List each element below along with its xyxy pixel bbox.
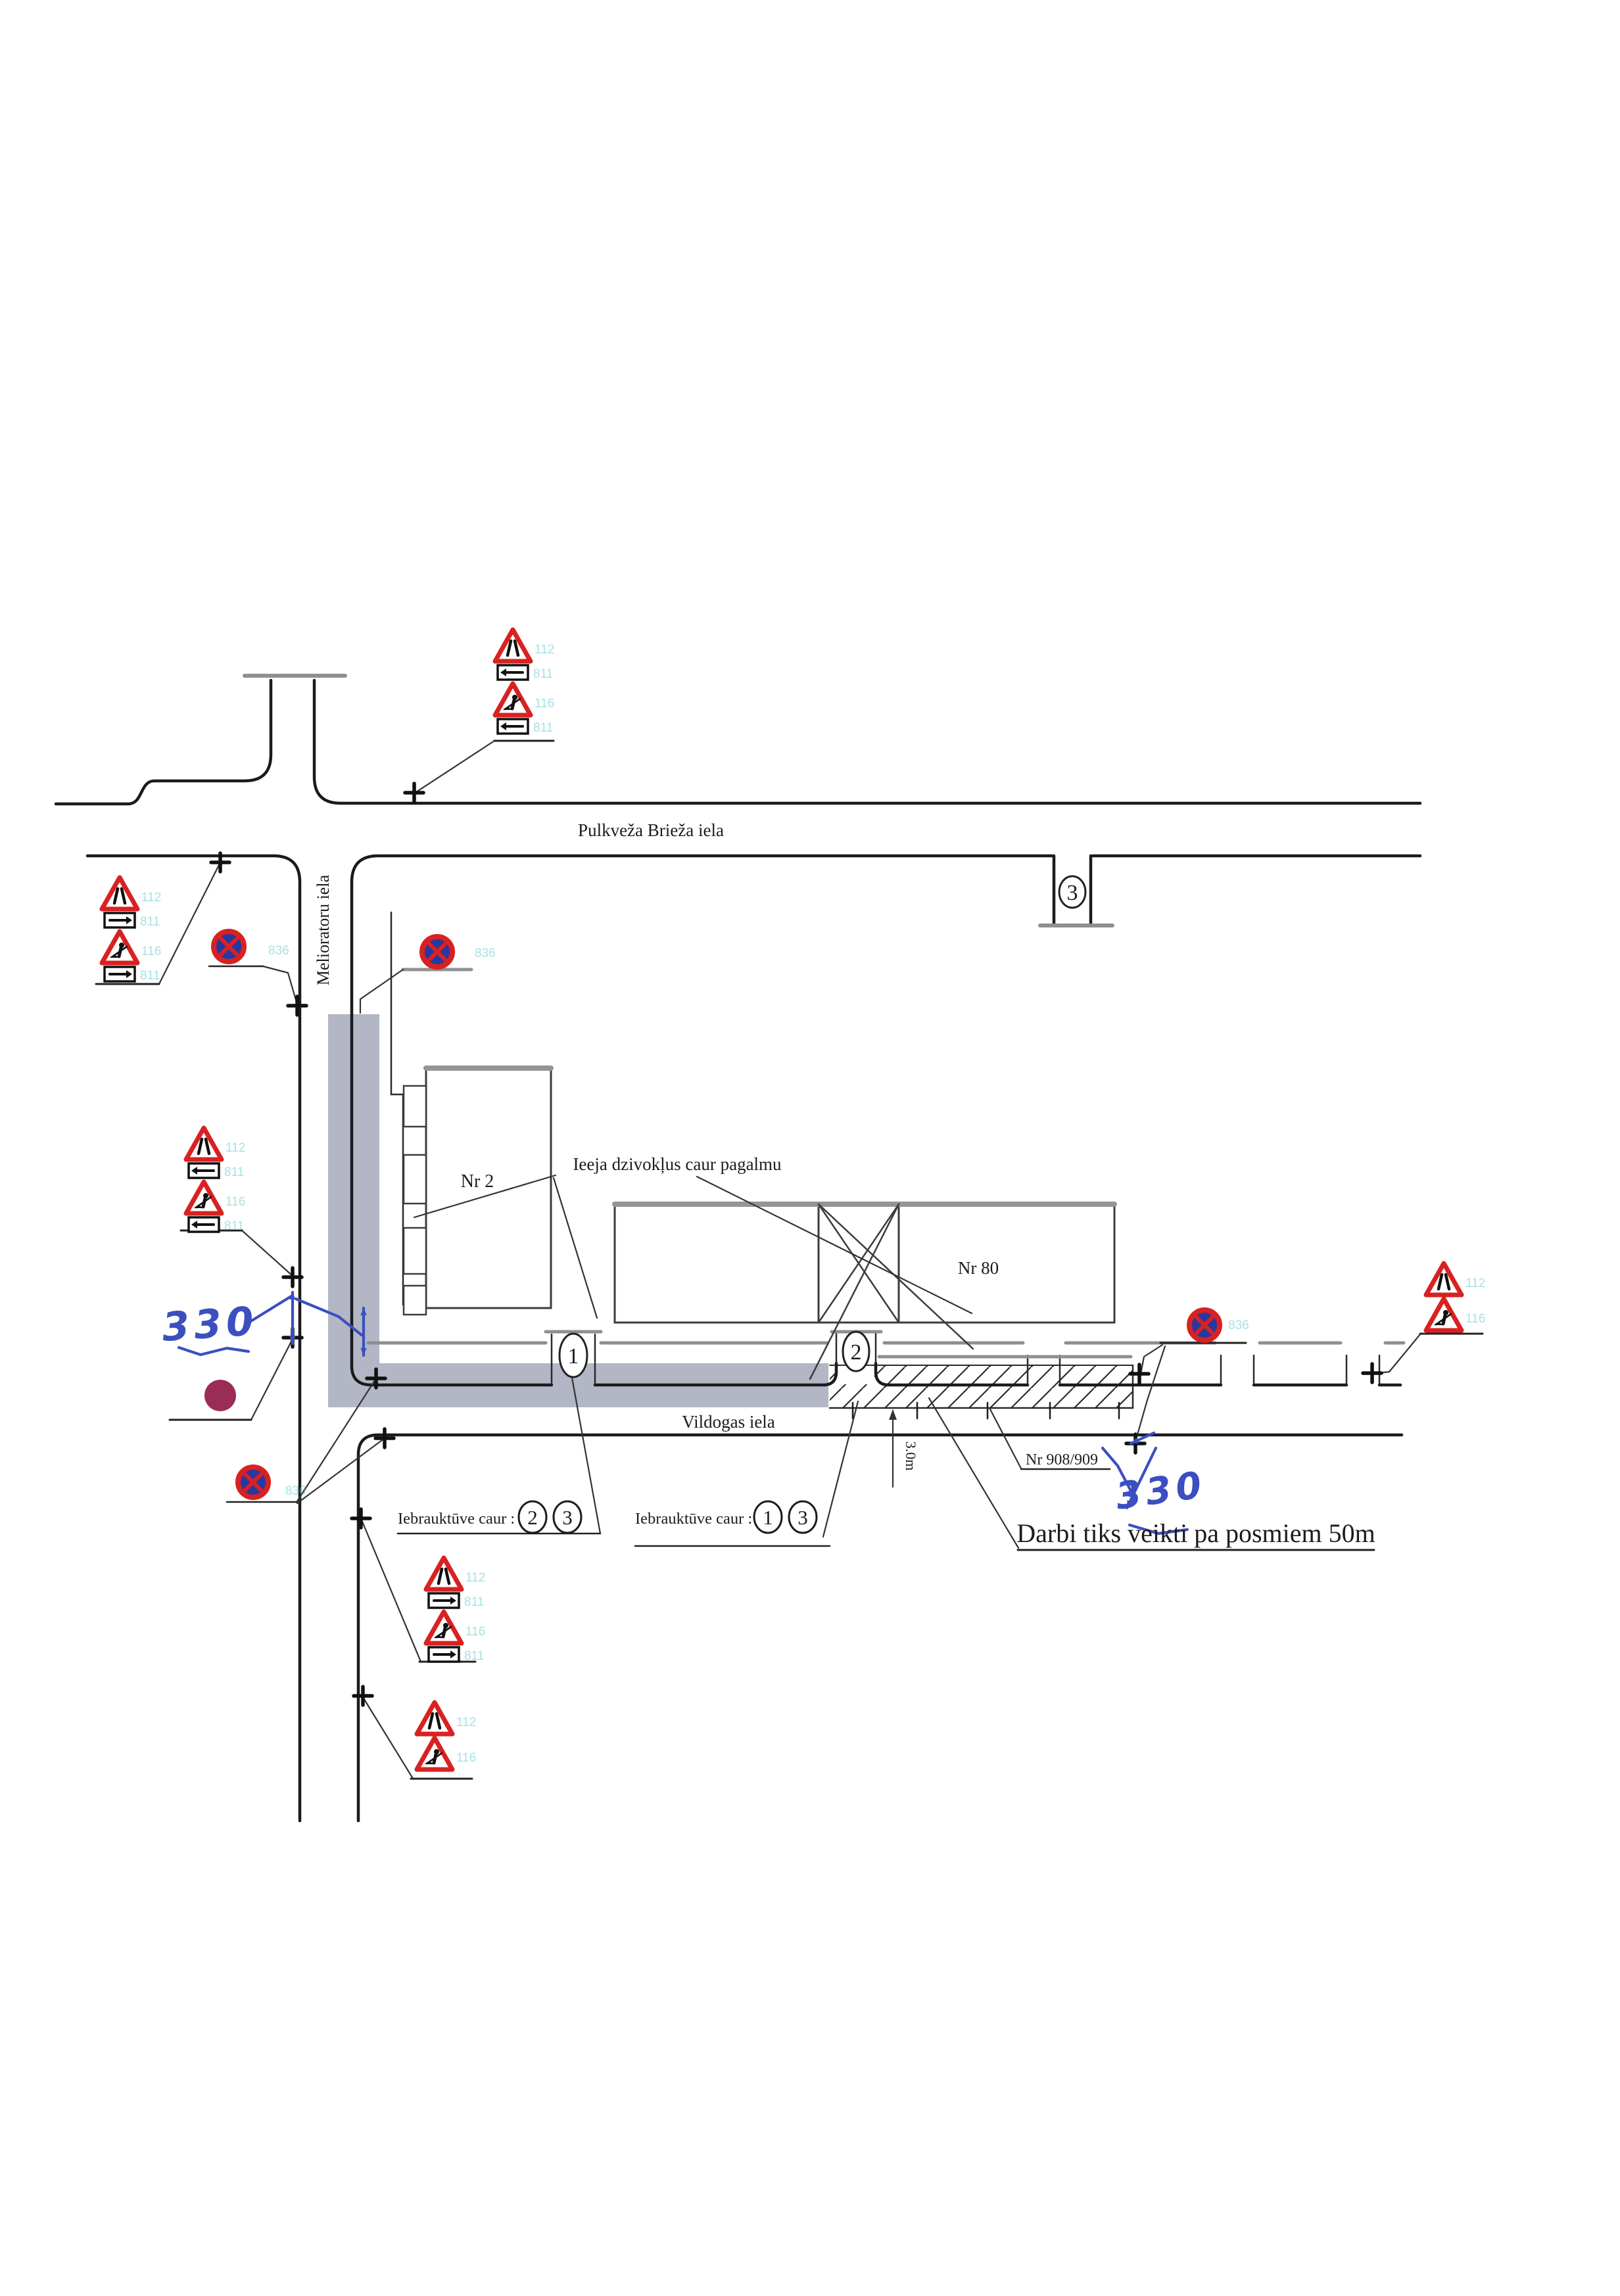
leader-line <box>989 1408 1021 1468</box>
street-label-pulkveza: Pulkveža Brieža iela <box>578 820 724 840</box>
access-row2-label: Iebrauktūve caur : <box>635 1510 752 1528</box>
leader-line <box>251 1339 293 1420</box>
handwritten-330-left: 330 <box>160 1298 260 1351</box>
sign-code-faint: 811 <box>464 1595 484 1609</box>
access-row1-label: Iebrauktūve caur : <box>398 1510 515 1528</box>
sign-code-faint: 811 <box>533 667 553 681</box>
road-narrows-sign-icon <box>495 630 531 661</box>
sign-code-faint: 811 <box>224 1219 244 1233</box>
note-darbi-posmiem: Darbi tiks veikti pa posmiem 50m <box>1016 1518 1375 1548</box>
road-edge <box>56 680 271 804</box>
road-edge <box>352 856 1052 882</box>
junction-number-2: 2 <box>851 1340 862 1365</box>
junction-number-1: 1 <box>568 1344 579 1369</box>
road-edge <box>358 1435 1402 1821</box>
road-narrows-sign-icon <box>426 1558 462 1589</box>
building-yard-passage <box>404 1286 426 1315</box>
leader-line <box>416 741 494 792</box>
traffic-signs-layer: 1128111168111128111168111128111168111128… <box>102 630 1485 1769</box>
sign-code-faint: 112 <box>226 1141 245 1155</box>
sign-stack-vildogas-east <box>1426 1263 1462 1330</box>
road-works-plan-canvas: 1128111168111128111168111128111168111128… <box>0 0 1620 2293</box>
building-yard-passage <box>404 1228 426 1274</box>
sign-code-faint: 811 <box>533 721 553 735</box>
sign-code-faint: 836 <box>1228 1319 1249 1332</box>
building-label-nr2: Nr 2 <box>461 1171 494 1192</box>
leader-line <box>1135 1346 1165 1441</box>
handwritten-330-right: 330 <box>1113 1463 1209 1518</box>
sign-code-faint: 112 <box>535 643 554 657</box>
access-circle-number-1: 1 <box>763 1506 773 1529</box>
sign-code-faint: 112 <box>1465 1277 1485 1290</box>
leader-line <box>363 1697 412 1777</box>
leader-line <box>929 1398 1018 1548</box>
junction-number-3: 3 <box>1067 881 1078 905</box>
leader-line <box>263 966 297 1004</box>
sign-code-faint: 116 <box>456 1751 476 1765</box>
building-label-nr908-909: Nr 908/909 <box>1026 1451 1098 1468</box>
sign-code-faint: 116 <box>226 1195 245 1209</box>
red-dot-marker <box>204 1380 236 1411</box>
leader-line <box>1141 1345 1162 1374</box>
sign-code-faint: 112 <box>456 1716 476 1729</box>
traffic-scheme-drawing: 1128111168111128111168111128111168111128… <box>0 0 1620 2296</box>
sign-code-faint: 811 <box>140 969 160 983</box>
leader-line <box>554 1178 597 1318</box>
road-edge <box>314 680 1420 803</box>
access-circle-number-3: 3 <box>562 1506 573 1529</box>
leader-line <box>360 970 403 1013</box>
buildings-layer <box>404 1068 1114 1379</box>
street-label-melioratoru: Melioratoru iela <box>314 874 333 985</box>
sign-stack-vildogas-west <box>426 1558 462 1662</box>
note-ieeja-pagalmu: Ieeja dzivokļus caur pagalmu <box>573 1154 782 1174</box>
sign-stack-melioratoru-mid <box>186 1128 222 1232</box>
building-yard-passage <box>404 1086 426 1127</box>
sign-code-faint: 116 <box>1465 1312 1485 1326</box>
sign-code-faint: 836 <box>475 947 496 960</box>
building-yard-passage <box>404 1155 426 1204</box>
work-zone-gray <box>328 1014 379 1407</box>
road-narrows-sign-icon <box>186 1128 222 1160</box>
leader-line <box>361 1518 421 1662</box>
building-label-nr80: Nr 80 <box>958 1258 999 1278</box>
sign-stack-pulkveza-west <box>495 630 531 734</box>
dimension-arrowhead <box>889 1409 897 1420</box>
sign-code-faint: 836 <box>268 944 289 958</box>
sign-stack-melioratoru-north <box>102 878 137 981</box>
sign-code-faint: 836 <box>285 1484 306 1498</box>
leader-line <box>297 1438 385 1503</box>
sign-code-faint: 112 <box>465 1571 485 1585</box>
road-narrows-sign-icon <box>1426 1263 1462 1295</box>
sign-stack-melioratoru-south <box>417 1702 452 1769</box>
building-nr80 <box>899 1204 1114 1323</box>
dimension-3m-label: 3.0m <box>903 1441 919 1471</box>
sign-code-faint: 811 <box>464 1649 484 1663</box>
leader-line <box>242 1230 293 1276</box>
sign-code-faint: 811 <box>224 1165 244 1179</box>
access-circle-number-3: 3 <box>798 1506 808 1529</box>
road-narrows-sign-icon <box>417 1702 452 1734</box>
sign-code-faint: 116 <box>141 945 161 958</box>
leader-line <box>823 1401 858 1537</box>
access-circle-number-2: 2 <box>527 1506 538 1529</box>
leader-line <box>1377 1334 1420 1373</box>
sign-code-faint: 116 <box>465 1625 485 1639</box>
sign-code-faint: 811 <box>140 915 160 929</box>
sign-code-faint: 112 <box>141 891 161 904</box>
street-label-vildogas: Vildogas iela <box>682 1412 775 1432</box>
sign-code-faint: 116 <box>535 697 554 711</box>
road-narrows-sign-icon <box>102 878 137 909</box>
